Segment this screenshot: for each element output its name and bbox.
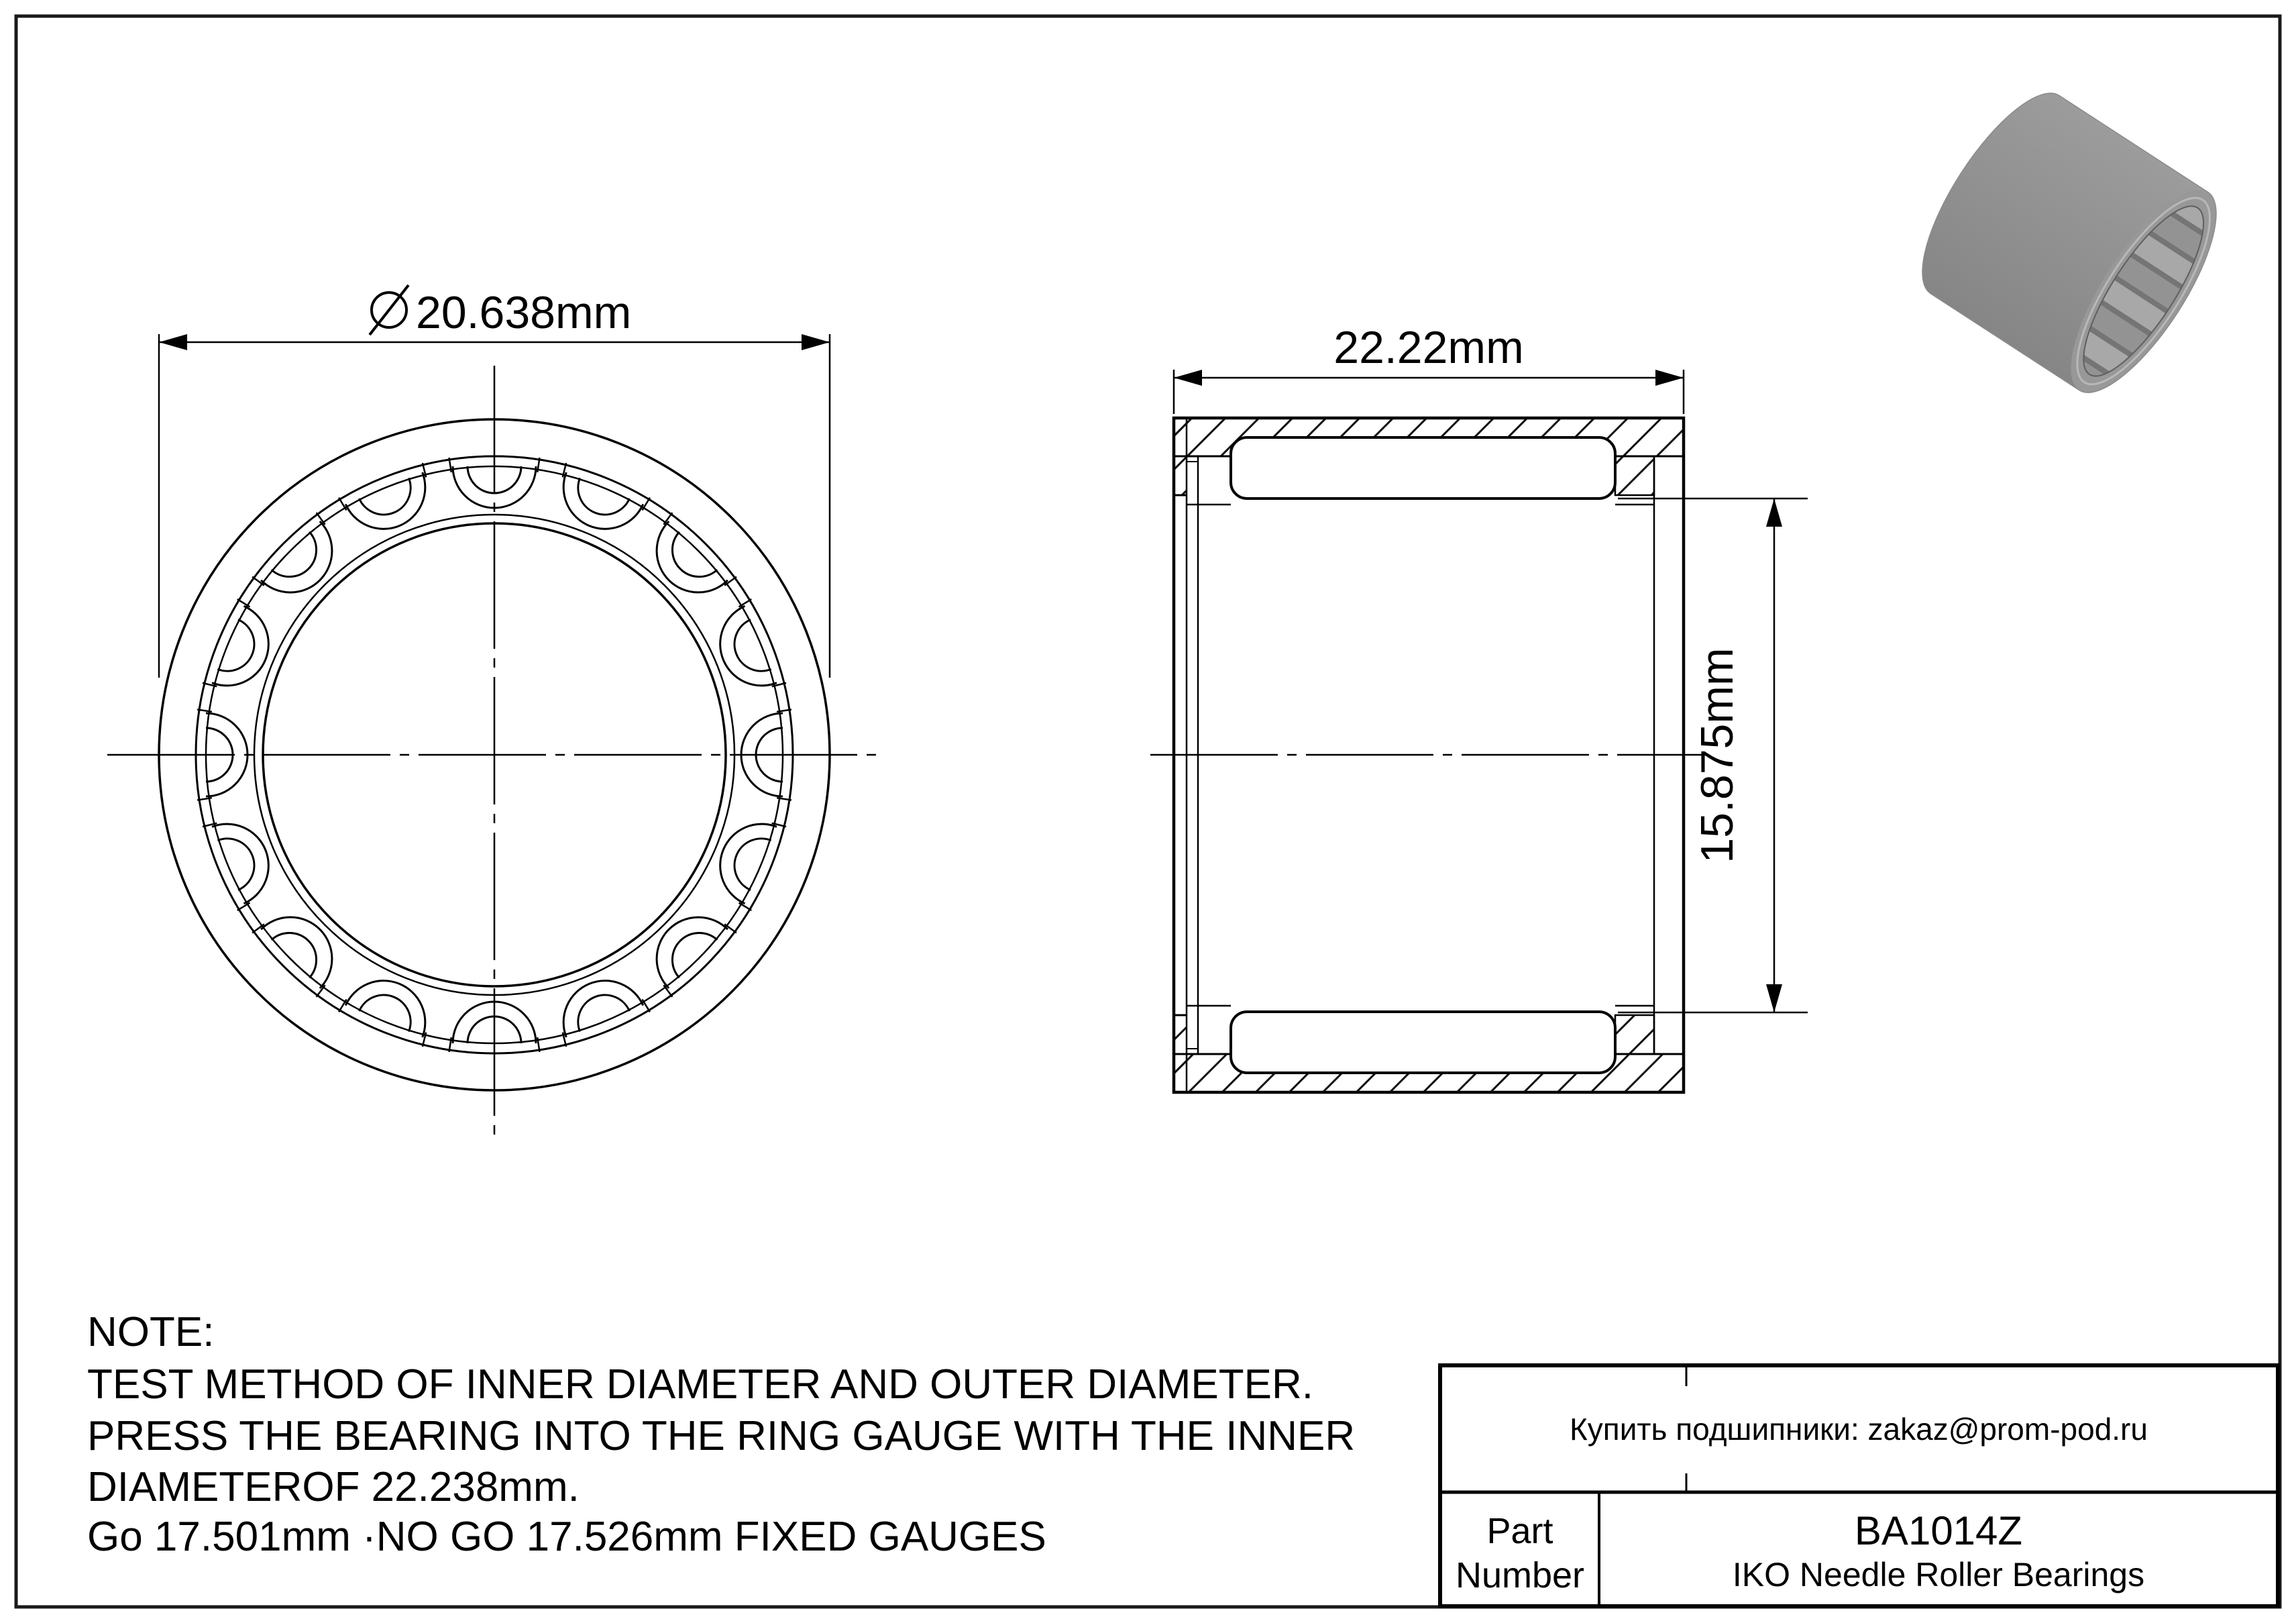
bottom-roller: [1231, 1012, 1615, 1073]
section-view: 22.22mm 15.875mm: [1150, 322, 1808, 1092]
front-view: 20.638mm: [107, 285, 882, 1141]
bearing-3d-render: [1897, 74, 2296, 452]
note-block: NOTE: TEST METHOD OF INNER DIAMETER AND …: [87, 1309, 1355, 1560]
part-label-line2: Number: [1456, 1555, 1584, 1595]
note-line: Go 17.501mm ·NO GO 17.526mm FIXED GAUGES: [87, 1514, 1046, 1560]
title-block: Купить подшипники: zakaz@prom-pod.ru Par…: [1440, 1365, 2278, 1606]
top-roller: [1231, 437, 1615, 499]
arrowhead-right-icon: [1655, 370, 1684, 386]
part-label-line1: Part: [1486, 1511, 1553, 1551]
arrowhead-left-icon: [1174, 370, 1202, 386]
series-name: IKO Needle Roller Bearings: [1733, 1556, 2144, 1593]
note-line: PRESS THE BEARING INTO THE RING GAUGE WI…: [87, 1413, 1355, 1459]
engineering-drawing: 20.638mm: [0, 0, 2296, 1623]
note-line: TEST METHOD OF INNER DIAMETER AND OUTER …: [87, 1361, 1313, 1408]
shell-right-flange-bottom: [1615, 1015, 1654, 1054]
arrowhead-right-icon: [802, 334, 830, 350]
shell-right-flange-top: [1615, 456, 1654, 495]
note-heading: NOTE:: [87, 1309, 214, 1355]
drawing-sheet: 20.638mm: [0, 0, 2296, 1623]
arrowhead-left-icon: [159, 334, 187, 350]
part-number: BA1014Z: [1855, 1508, 2022, 1553]
width-label: 22.22mm: [1333, 322, 1523, 373]
note-line: DIAMETEROF 22.238mm.: [87, 1464, 580, 1510]
diameter-symbol-icon: [370, 285, 408, 335]
contact-text: Купить подшипники: zakaz@prom-pod.ru: [1570, 1412, 2148, 1447]
arrowhead-down-icon: [1766, 984, 1782, 1012]
arrowhead-up-icon: [1766, 499, 1782, 527]
bore-label: 15.875mm: [1692, 647, 1743, 863]
width-dimension: 22.22mm: [1174, 322, 1684, 414]
outer-diameter-label: 20.638mm: [416, 287, 631, 338]
